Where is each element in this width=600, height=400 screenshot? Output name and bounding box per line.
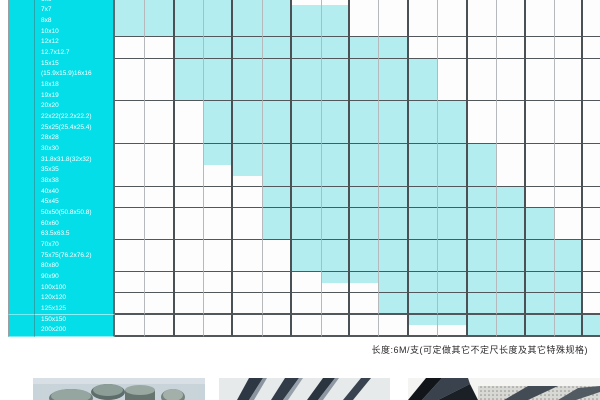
- grid-cell: [115, 325, 145, 337]
- round-bars-image: [33, 378, 205, 400]
- grid-cell: [555, 325, 583, 337]
- grid-cell: [526, 325, 555, 337]
- grid-cell: [438, 325, 468, 337]
- length-footnote: 长度:6M/支(可定做其它不定尺长度及其它特殊规格): [300, 343, 588, 356]
- catalog-page: 6x67x78x810x1012x1212.7x12.715x15(15.9x1…: [0, 0, 600, 400]
- grid-cell: [145, 325, 175, 337]
- angle-channel-image: [408, 378, 600, 400]
- grid-cell: [204, 325, 233, 337]
- product-photo-flat-bars: [219, 378, 390, 400]
- grid-cell: [379, 325, 409, 337]
- product-photo-round-bars: [33, 378, 205, 400]
- row-label: 200x200: [35, 325, 115, 337]
- grid-cell: [233, 325, 263, 337]
- grid-cell: [263, 325, 292, 337]
- grid-cell: [497, 325, 526, 337]
- grid-cell: [350, 325, 379, 337]
- product-photo-angle-channel: [408, 378, 600, 400]
- grid-cell: [468, 325, 497, 337]
- row-lead-cell: [8, 325, 35, 337]
- grid-cell: [409, 325, 438, 337]
- grid-cell: [292, 325, 322, 337]
- grid-cell: [583, 325, 600, 337]
- flat-bars-image: [219, 378, 390, 400]
- grid-cell: [175, 325, 204, 337]
- grid-cell: [322, 325, 350, 337]
